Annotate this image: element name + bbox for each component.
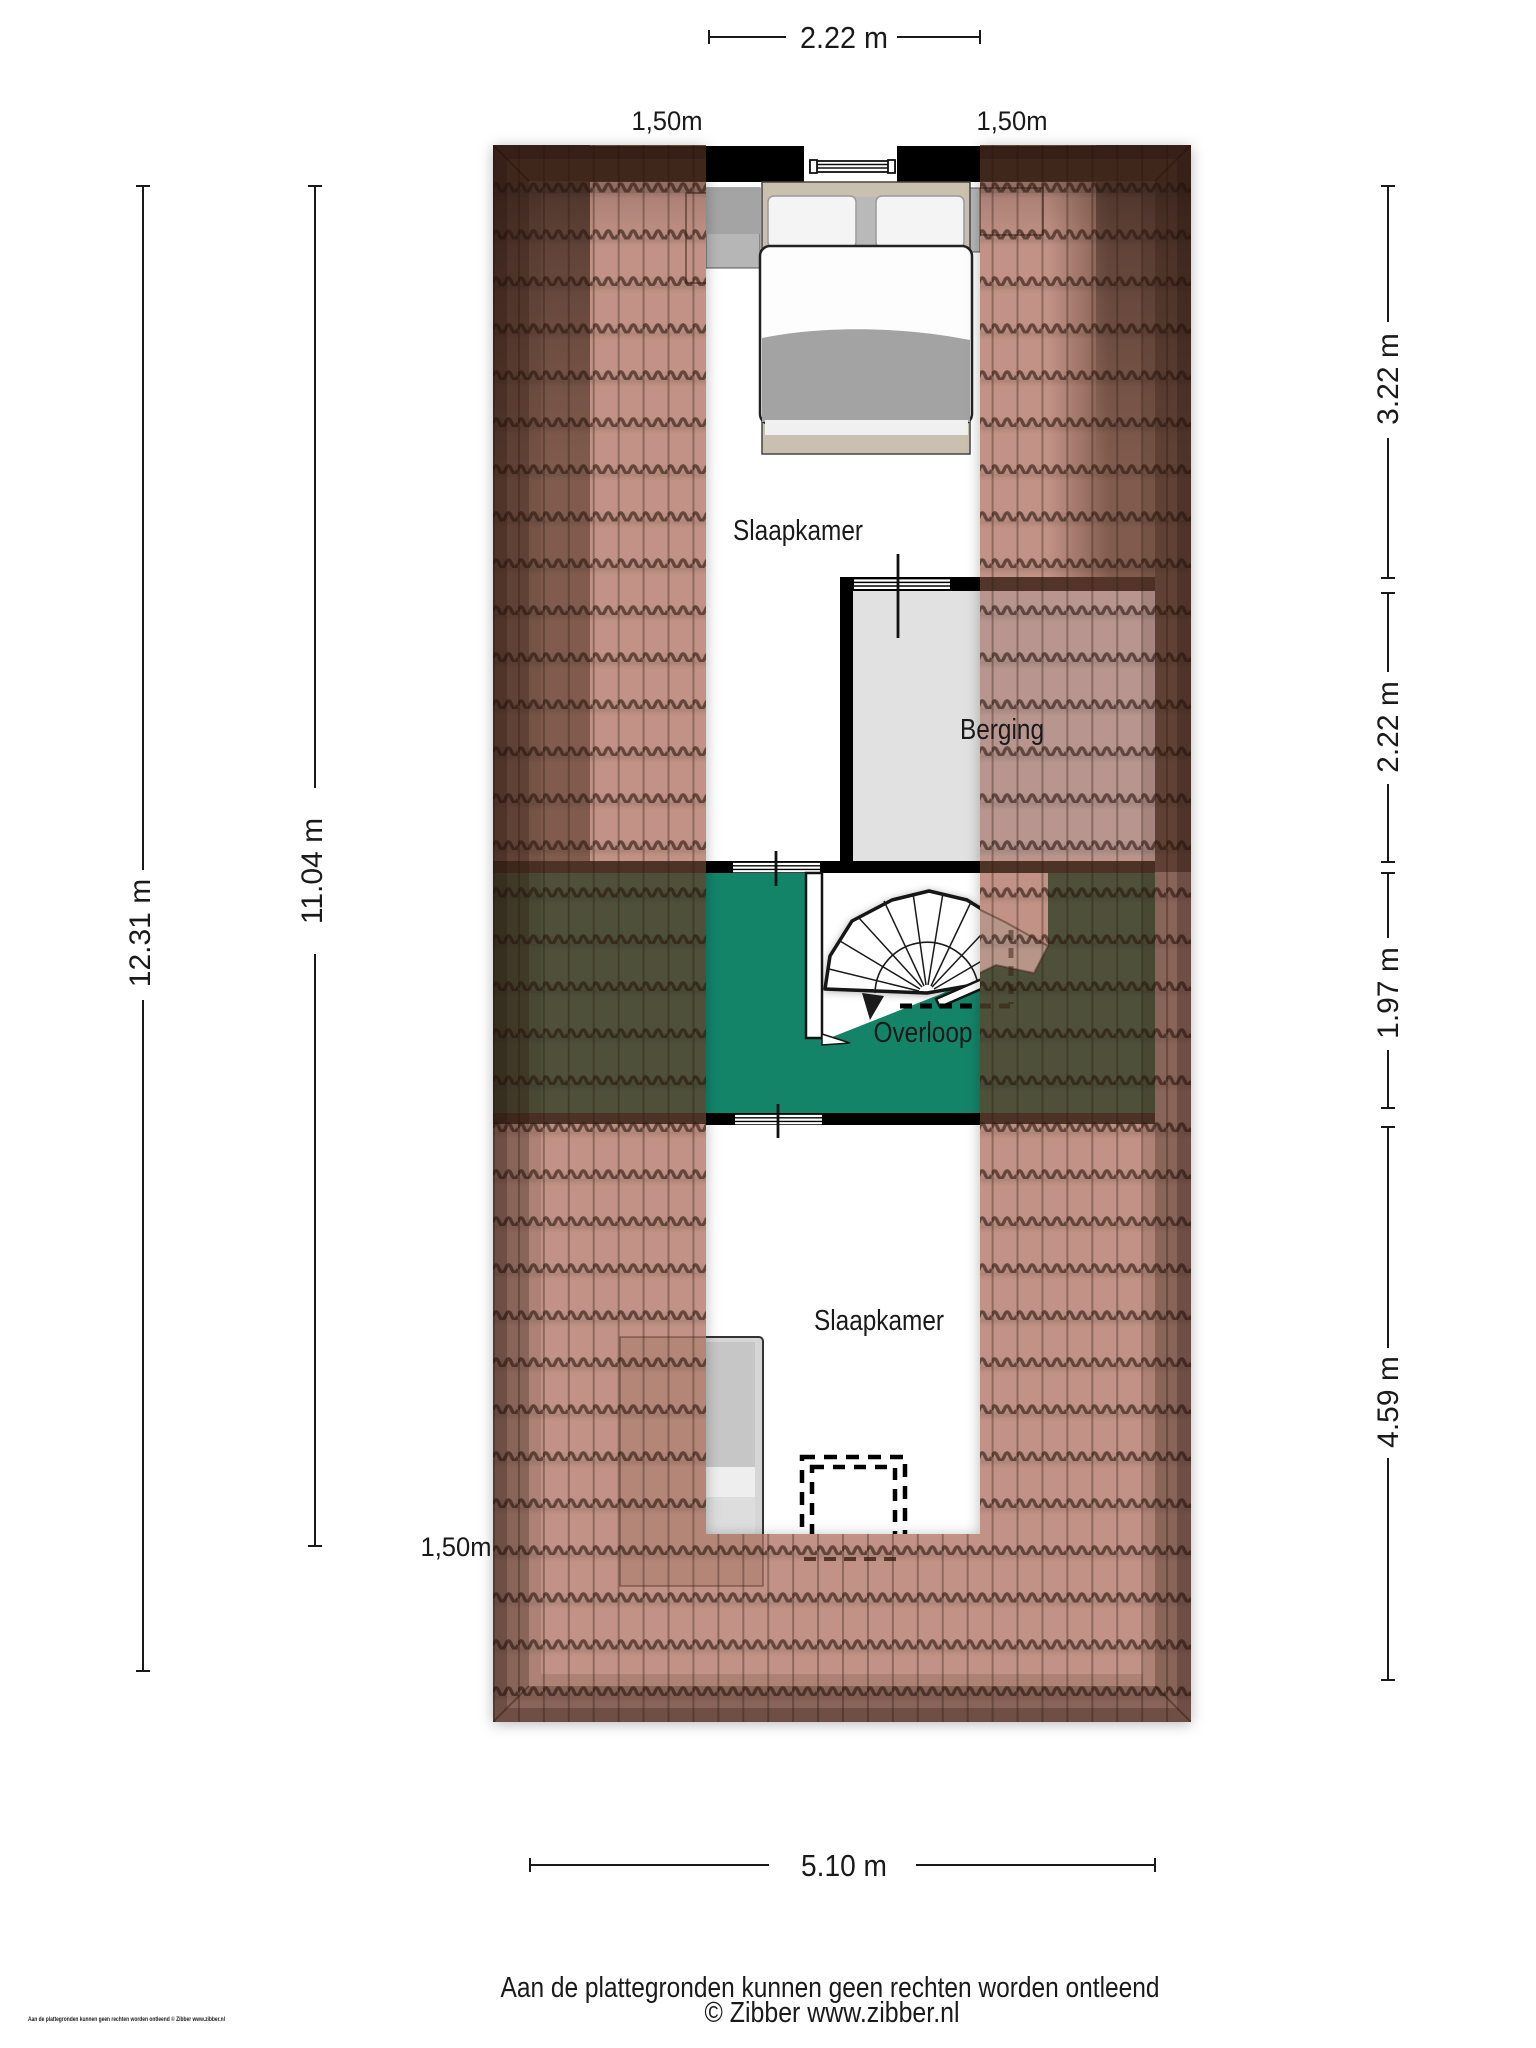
svg-text:Slaapkamer: Slaapkamer [733, 515, 863, 547]
svg-text:Slaapkamer: Slaapkamer [814, 1305, 944, 1337]
svg-text:1,50m: 1,50m [421, 1532, 492, 1562]
svg-text:3.22 m: 3.22 m [1372, 333, 1405, 425]
svg-text:12.31 m: 12.31 m [124, 879, 157, 987]
svg-text:Aan de plattegronden kunnen ge: Aan de plattegronden kunnen geen rechten… [28, 2016, 225, 2023]
svg-text:4.59 m: 4.59 m [1372, 1356, 1405, 1448]
svg-text:1.97 m: 1.97 m [1372, 947, 1405, 1039]
svg-text:© Zibber www.zibber.nl: © Zibber www.zibber.nl [705, 1997, 960, 2029]
svg-text:2.22 m: 2.22 m [800, 20, 888, 55]
svg-text:Overloop: Overloop [874, 1017, 973, 1049]
svg-text:11.04 m: 11.04 m [296, 818, 329, 924]
svg-text:1,50m: 1,50m [632, 106, 703, 136]
svg-text:5.10 m: 5.10 m [801, 1848, 887, 1883]
svg-text:1,50m: 1,50m [977, 106, 1048, 136]
svg-text:Berging: Berging [960, 714, 1044, 746]
svg-text:2.22 m: 2.22 m [1372, 681, 1405, 773]
